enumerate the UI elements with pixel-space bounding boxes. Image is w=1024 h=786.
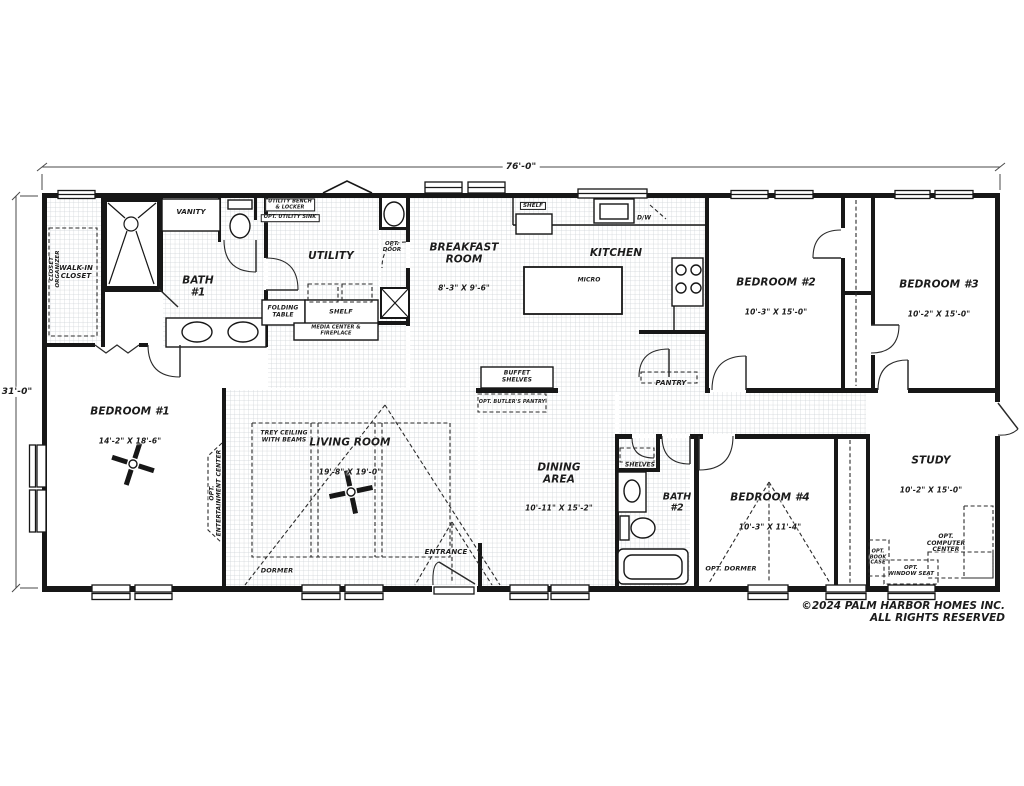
room-label-bedroom4: BEDROOM #4 10'-3" X 11'-4" — [730, 475, 810, 550]
room-label-utility: UTILITY — [308, 251, 354, 263]
room-label-bedroom2: BEDROOM #2 10'-3" X 15'-0" — [736, 260, 816, 335]
room-label-study: STUDY 10'-2" X 15'-0" — [900, 438, 962, 513]
width-dimension-label: 76'-0" — [503, 162, 540, 172]
roof-gable-mark — [323, 181, 372, 193]
shelf-utility-label: SHELF — [329, 308, 353, 315]
room-label-breakfast: BREAKFAST ROOM 8'-3" X 9'-6" — [429, 225, 498, 312]
opt-dormer-label: OPT. DORMER — [705, 565, 756, 572]
shelf-kitchen-label: SHELF — [520, 202, 546, 210]
sink-bowl — [182, 322, 212, 342]
stove-burner — [676, 265, 686, 275]
folding-table-label: FOLDING TABLE — [268, 305, 299, 318]
copyright-notice: ©2024 PALM HARBOR HOMES INC. ALL RIGHTS … — [801, 600, 1005, 625]
opt-computer-center-label: OPT. COMPUTER CENTER — [927, 534, 965, 554]
opt-utility-sink-label: OPT. UTILITY SINK — [261, 214, 320, 222]
room-label-bedroom1: BEDROOM #1 14'-2" X 18'-6" — [90, 389, 170, 464]
closet-organizer-label: CLOSET ORGANIZER — [49, 250, 61, 287]
stove-burner — [691, 283, 701, 293]
toilet-tank — [228, 200, 252, 209]
utility-bench-label: UTILITY BENCH & LOCKER — [265, 198, 315, 211]
sink-bowl — [228, 322, 258, 342]
bath2-sink — [624, 480, 640, 502]
room-label-bedroom3: BEDROOM #3 10'-2" X 15'-0" — [899, 262, 979, 337]
opt-computer-center-box — [964, 506, 993, 578]
opt-butlers-pantry-label: OPT. BUTLER'S PANTRY — [479, 400, 545, 406]
tub-inner — [624, 555, 682, 579]
stove-burner — [691, 265, 701, 275]
copyright-line2: ALL RIGHTS RESERVED — [801, 612, 1005, 624]
media-center-label: MEDIA CENTER & FIREPLACE — [311, 325, 360, 336]
floor-plan: 76'-0" 31'-0" WALK-IN CLOSET BATH #1 UTI… — [0, 0, 1024, 786]
utility-sink — [384, 202, 404, 226]
vanity-label: VANITY — [176, 209, 205, 217]
stove-burner — [676, 283, 686, 293]
buffet-shelves-label: BUFFET SHELVES — [502, 370, 532, 383]
dormer-label: DORMER — [261, 567, 293, 574]
trey-ceiling-label: TREY CEILING WITH BEAMS — [260, 430, 307, 443]
opt-door-label: OPT. DOOR — [383, 241, 402, 253]
room-label-bath2: BATH #2 — [663, 492, 692, 513]
room-label-bath1: BATH #1 — [182, 275, 213, 299]
room-label-pantry: PANTRY — [656, 380, 687, 388]
opt-window-seat-label: OPT. WINDOW SEAT — [888, 565, 934, 577]
bath2-toilet-tank — [620, 516, 629, 540]
room-label-living: LIVING ROOM 19'-8" X 19'-0" — [309, 420, 390, 495]
height-dimension-label: 31'-0" — [0, 387, 35, 397]
room-label-walk-in-closet: WALK-IN CLOSET — [59, 265, 93, 281]
bath2-toilet-bowl — [631, 518, 655, 538]
opt-entertainment-center-label: OPT. ENTERTAINMENT CENTER — [209, 450, 222, 537]
toilet-bowl — [230, 214, 250, 238]
entrance-label: ENTRANCE — [425, 549, 468, 557]
microwave-label: MICRO — [578, 278, 601, 285]
room-label-dining: DINING AREA 10'-11" X 15'-2" — [525, 445, 593, 532]
dishwasher-label: D/W — [637, 216, 651, 223]
copyright-line1: ©2024 PALM HARBOR HOMES INC. — [801, 600, 1005, 612]
opt-book-case-label: OPT. BOOK CASE — [870, 550, 887, 567]
hall-shelves-label: SHELVES — [625, 463, 655, 470]
room-label-kitchen: KITCHEN — [590, 248, 642, 260]
